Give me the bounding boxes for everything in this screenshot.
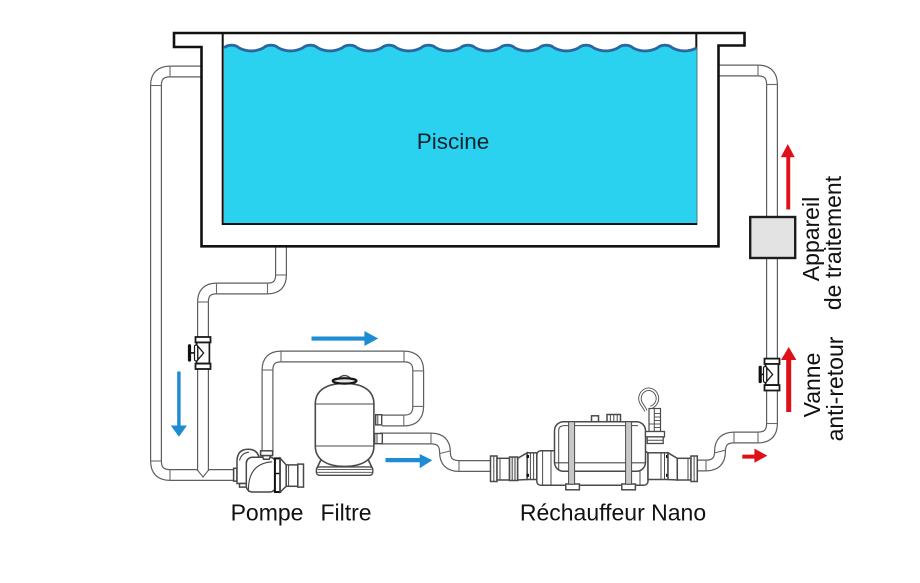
svg-text:anti-retour: anti-retour bbox=[822, 336, 848, 441]
svg-text:de traitement: de traitement bbox=[820, 175, 846, 310]
svg-text:Piscine: Piscine bbox=[417, 129, 490, 154]
svg-text:Pompe: Pompe bbox=[231, 500, 304, 526]
svg-text:Filtre: Filtre bbox=[320, 500, 371, 526]
svg-text:Réchauffeur Nano: Réchauffeur Nano bbox=[520, 500, 706, 526]
